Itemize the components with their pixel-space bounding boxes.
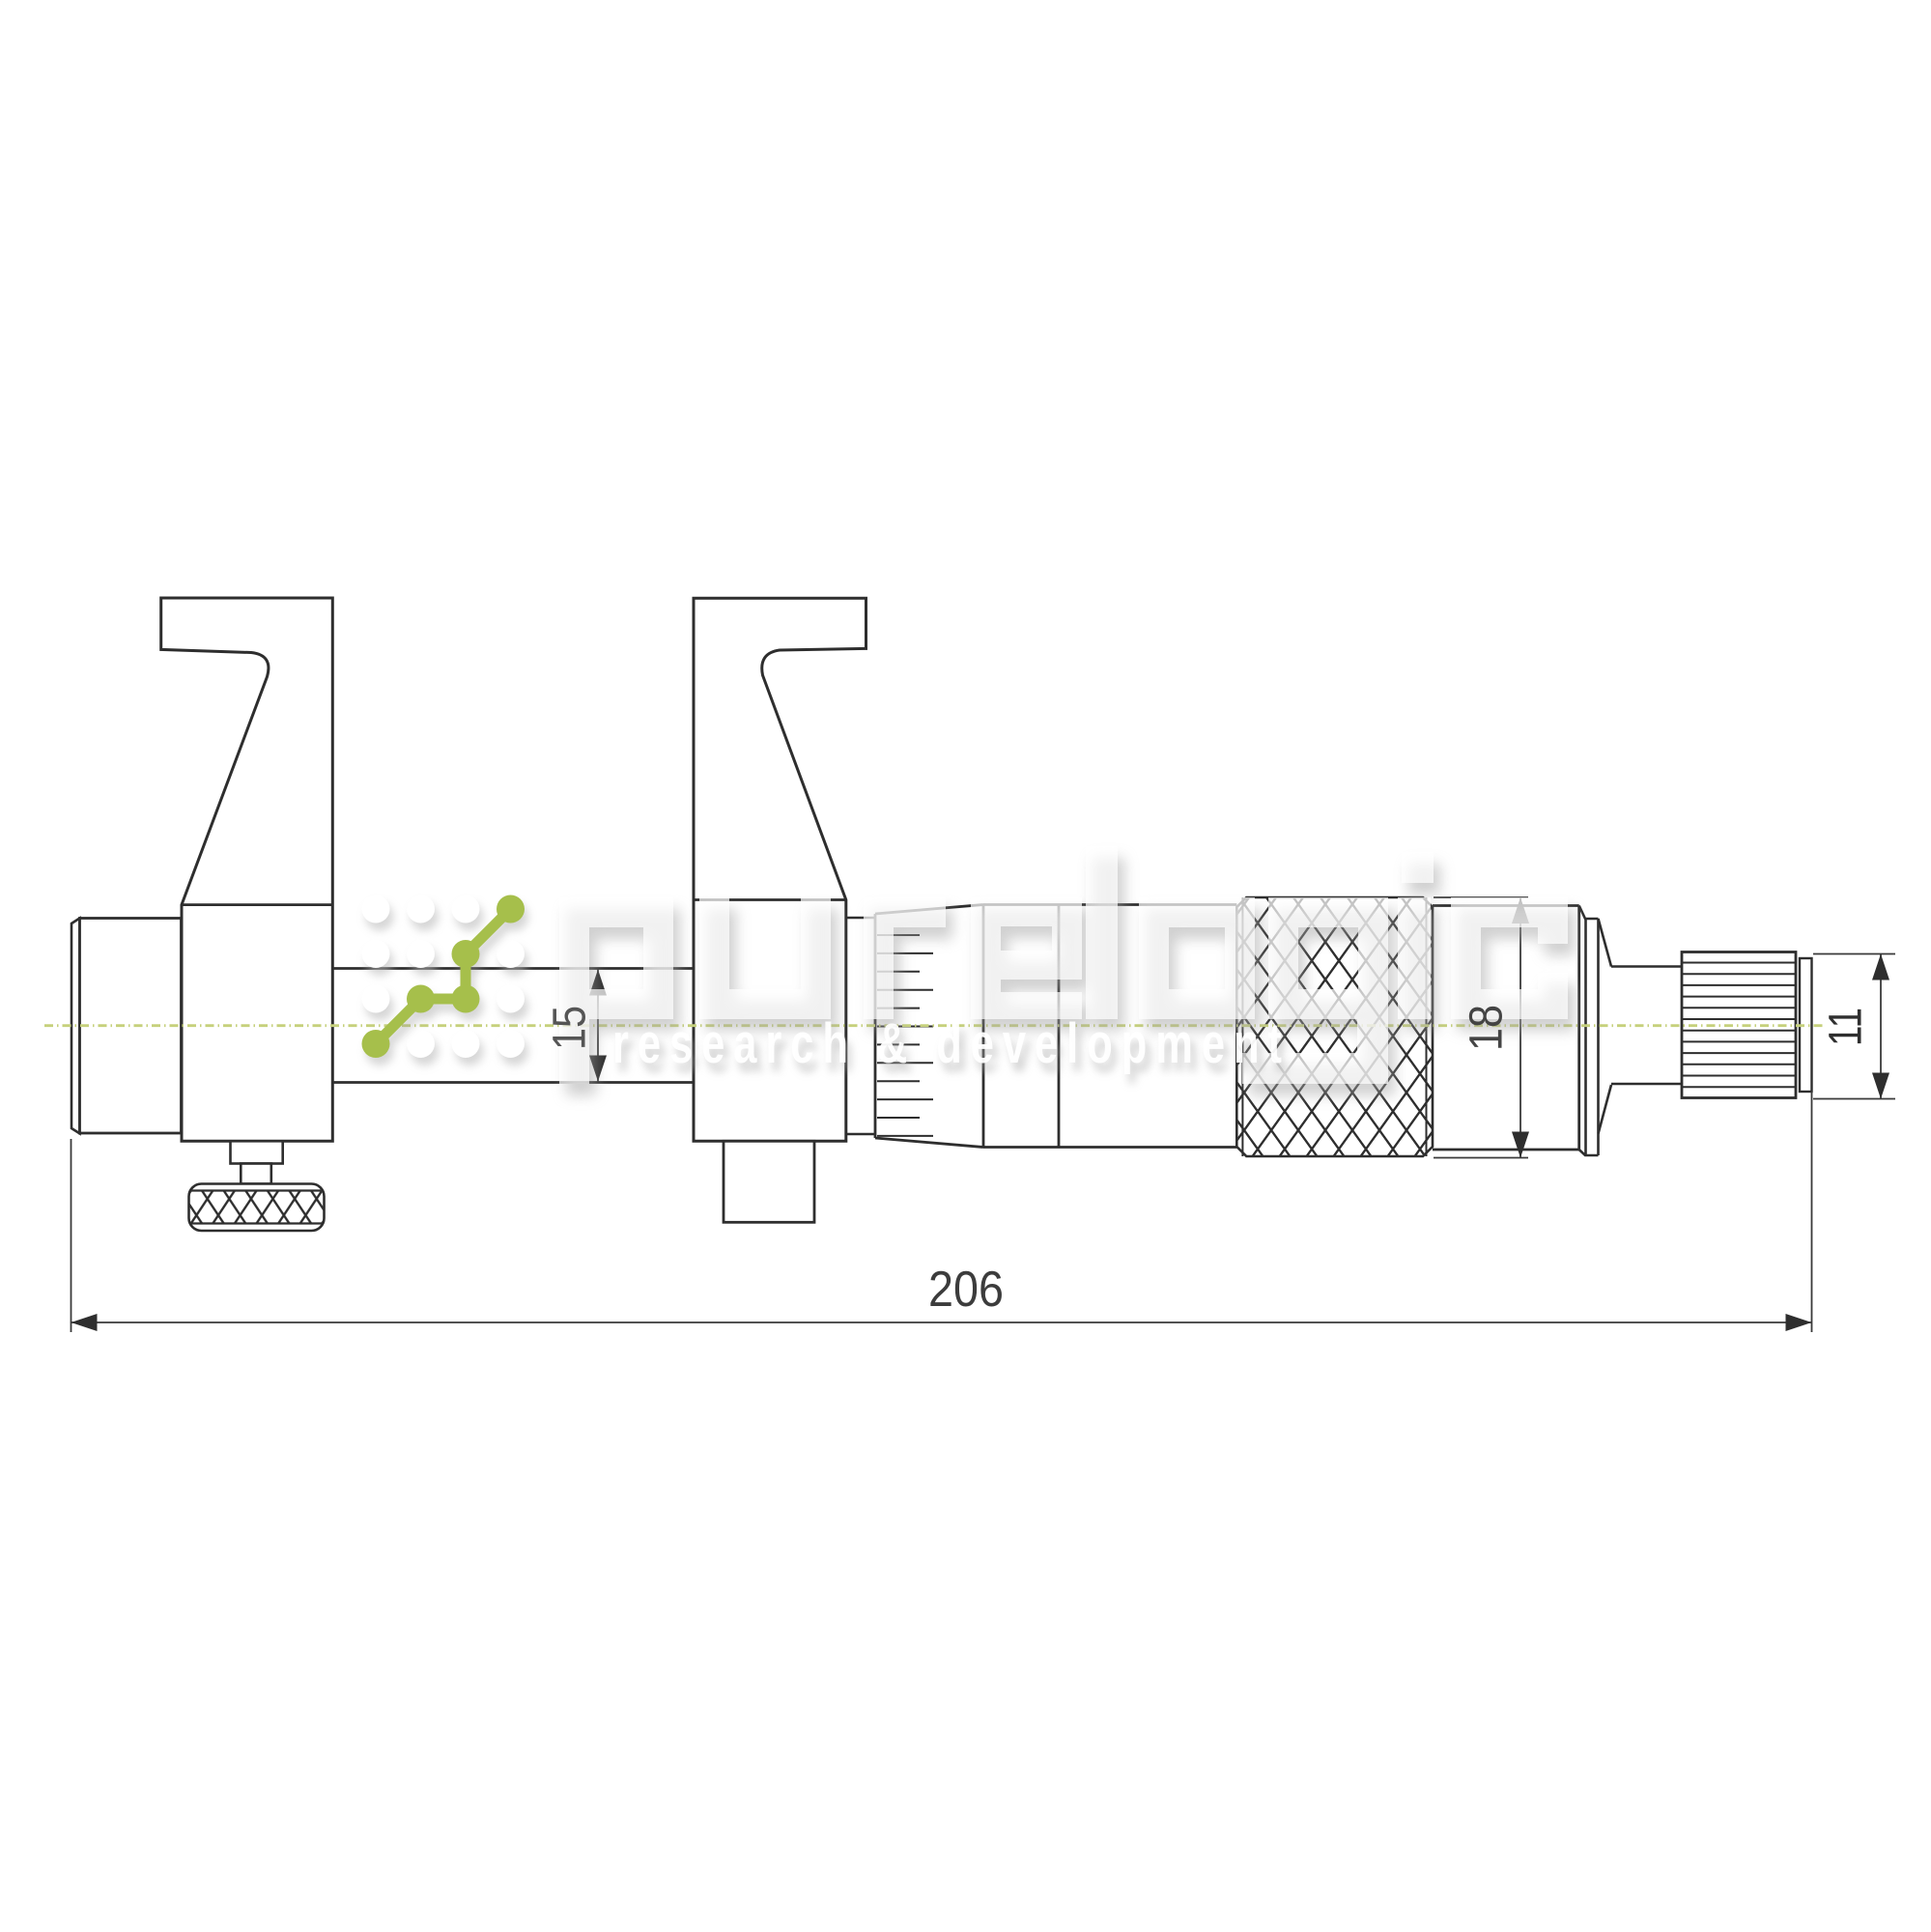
svg-text:15: 15: [545, 1006, 596, 1050]
svg-text:18: 18: [1462, 1005, 1513, 1051]
svg-text:206: 206: [928, 1262, 1004, 1318]
svg-text:11: 11: [1821, 1008, 1872, 1046]
